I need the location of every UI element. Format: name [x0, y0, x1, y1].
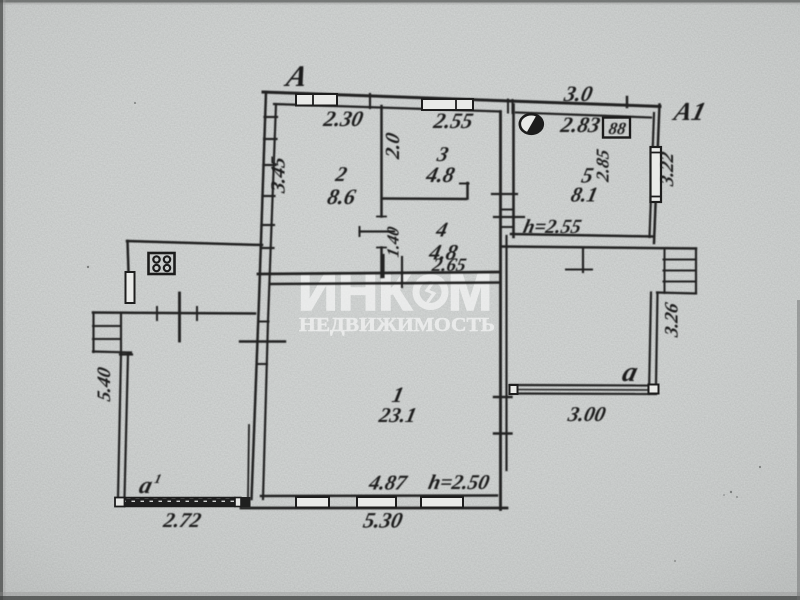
svg-text:88: 88 [607, 119, 627, 138]
svg-text:3.45: 3.45 [268, 155, 290, 196]
svg-text:4.87: 4.87 [366, 471, 410, 495]
svg-text:3.22: 3.22 [657, 150, 678, 189]
svg-text:2.0: 2.0 [382, 131, 404, 162]
svg-text:5.30: 5.30 [361, 508, 405, 533]
svg-text:2.55: 2.55 [431, 108, 476, 133]
svg-text:3.00: 3.00 [565, 402, 608, 426]
svg-text:1.40: 1.40 [384, 225, 403, 259]
svg-text:3.26: 3.26 [662, 301, 683, 340]
svg-text:23.1: 23.1 [376, 403, 419, 427]
svg-text:2.72: 2.72 [161, 508, 204, 532]
svg-text:4.8: 4.8 [423, 162, 457, 187]
svg-text:5.40: 5.40 [94, 365, 115, 403]
svg-text:h=2.55: h=2.55 [521, 216, 583, 238]
svg-text:3.0: 3.0 [561, 81, 595, 106]
svg-text:2.85: 2.85 [593, 147, 613, 184]
svg-text:НЕДВИЖИМОСТЬ: НЕДВИЖИМОСТЬ [299, 314, 495, 336]
svg-text:2.83: 2.83 [558, 112, 603, 137]
svg-text:2.65: 2.65 [429, 255, 468, 276]
svg-text:2.30: 2.30 [321, 106, 366, 131]
svg-text:h=2.50: h=2.50 [426, 470, 492, 494]
svg-text:8.1: 8.1 [569, 183, 600, 207]
